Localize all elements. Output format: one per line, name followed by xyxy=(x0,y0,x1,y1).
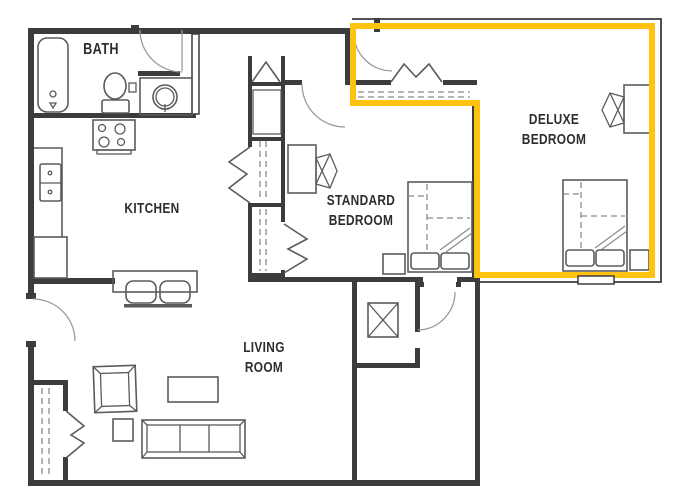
room-label-deluxe-bedroom: DELUXE BEDROOM xyxy=(522,110,586,150)
suite-exterior-wall xyxy=(352,19,661,282)
armchair-icon xyxy=(93,365,137,412)
nightstand-icon xyxy=(630,250,649,270)
deluxe-suite-highlight[interactable] xyxy=(353,26,652,275)
standard-closet-bifold-door-icon xyxy=(284,224,307,273)
window-notch-icon xyxy=(578,276,614,284)
utility-room xyxy=(368,303,398,337)
floor-plan: BATH KITCHEN STANDARD BEDROOM DELUXE BED… xyxy=(0,0,685,501)
side-table-icon xyxy=(113,419,133,441)
living-closet-bifold-door-icon xyxy=(66,411,84,458)
pillow-icon xyxy=(411,253,439,269)
kitchen-closet-bifold-door-icon xyxy=(229,147,250,203)
standard-bedroom-door-arc-icon xyxy=(302,84,345,127)
pillow-icon xyxy=(566,250,594,266)
bed-icon xyxy=(408,182,472,272)
pillow-icon xyxy=(441,253,469,269)
office-chair-icon xyxy=(602,93,624,127)
toilet-icon xyxy=(104,73,126,99)
sofa-icon xyxy=(142,420,245,458)
utility-box-icon xyxy=(368,303,398,337)
column-top-bifold-door-icon xyxy=(252,62,280,82)
room-label-living-room: LIVING ROOM xyxy=(243,338,285,378)
bed-icon xyxy=(563,180,627,271)
pillow-icon xyxy=(596,250,624,266)
bathtub-drain-icon xyxy=(50,91,56,97)
bathtub-icon xyxy=(38,38,68,112)
corridor-closet-bifold-door-icon xyxy=(391,64,442,82)
desk-icon xyxy=(288,145,316,193)
desk-icon xyxy=(624,85,650,133)
utility-room-door-arc-icon xyxy=(418,292,455,330)
stove-icon xyxy=(93,120,135,150)
doors xyxy=(33,30,455,458)
soap-dish-icon xyxy=(129,83,136,92)
coffee-table-icon xyxy=(168,377,218,402)
living-room-furniture xyxy=(93,365,245,458)
entry-door-arc-icon xyxy=(33,299,75,341)
bath-door-arc-icon xyxy=(140,30,182,72)
room-label-kitchen: KITCHEN xyxy=(124,199,179,219)
floor-plan-drawing xyxy=(0,0,685,501)
deluxe-bedroom-door-arc-icon xyxy=(354,33,392,71)
office-chair-icon xyxy=(316,154,337,188)
room-label-bath: BATH xyxy=(83,40,119,60)
closet-shelf-icon xyxy=(253,90,281,134)
nightstand-icon xyxy=(383,254,405,274)
room-label-standard-bedroom: STANDARD BEDROOM xyxy=(327,191,395,231)
